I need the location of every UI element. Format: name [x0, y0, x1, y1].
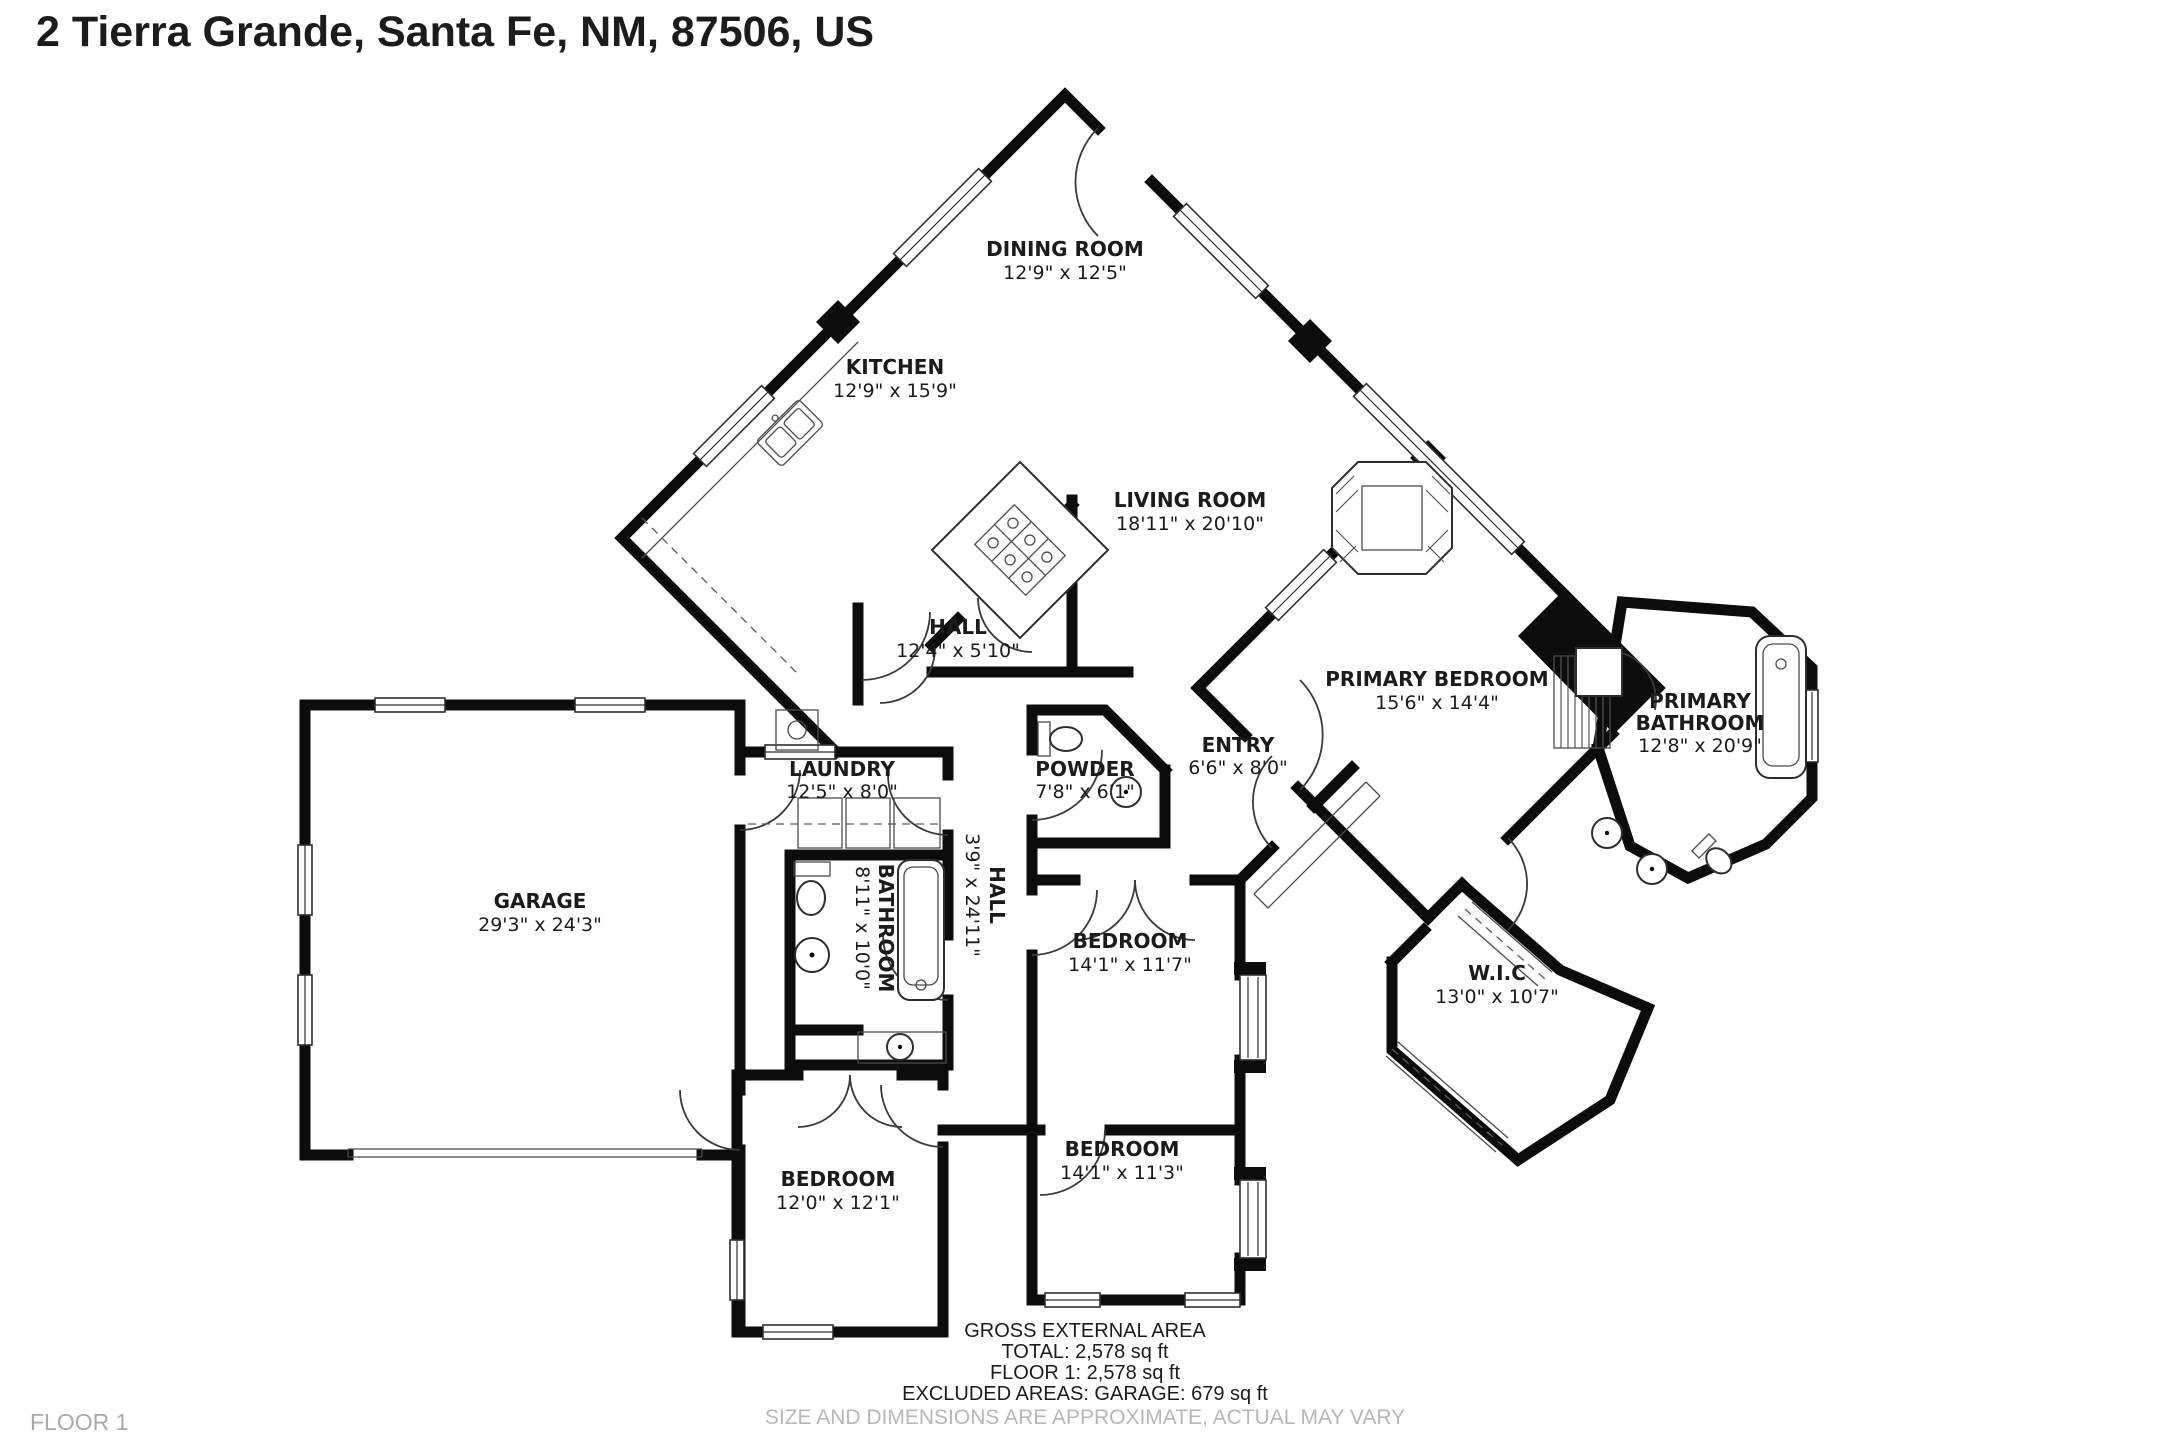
window-garage-top-2	[575, 698, 645, 712]
fixtures	[348, 342, 1806, 1157]
primary-bedroom-label: PRIMARY BEDROOM	[1325, 667, 1548, 691]
bathroom-label: BATHROOM	[874, 864, 898, 993]
door-arc-primary-entry	[1300, 680, 1323, 790]
toilet-icon	[794, 862, 830, 915]
door-arc-dining	[1075, 128, 1098, 236]
primary-bathroom-label-1: PRIMARY	[1649, 689, 1751, 713]
wall-entry-connector	[1314, 768, 1352, 806]
window-bedroom3-bottom	[763, 1325, 833, 1339]
powder-label: POWDER	[1035, 757, 1134, 781]
window-garage-left-2	[298, 975, 312, 1045]
kitchen-label: KITCHEN	[846, 355, 944, 379]
wall-primary-se	[1428, 734, 1612, 918]
primary-bathroom-label-2: BATHROOM	[1636, 711, 1765, 735]
hall2-dims: 3'9" x 24'11"	[961, 833, 983, 957]
primary-bathroom-dims: 12'8" x 20'9"	[1638, 735, 1762, 757]
window-bedroom2-bottom-1	[1045, 1293, 1100, 1307]
floor-tag: FLOOR 1	[30, 1409, 128, 1435]
bedroom-bl-dims: 12'0" x 12'1"	[776, 1192, 900, 1214]
footer-total: TOTAL: 2,578 sq ft	[1001, 1341, 1169, 1363]
window-kitchen	[694, 386, 775, 467]
living-room-label: LIVING ROOM	[1114, 488, 1267, 512]
footer-disclaimer: SIZE AND DIMENSIONS ARE APPROXIMATE, ACT…	[765, 1406, 1405, 1429]
sink-icon	[795, 938, 829, 972]
window-dining-ne	[1174, 204, 1269, 299]
door-arc-bedroom3	[881, 1085, 943, 1147]
entry-dims: 6'6" x 8'0"	[1188, 757, 1288, 779]
footer-floor1: FLOOR 1: 2,578 sq ft	[990, 1362, 1181, 1384]
garage-dims: 29'3" x 24'3"	[478, 914, 602, 936]
window-garage-top-1	[375, 698, 445, 712]
wic-dims: 13'0" x 10'7"	[1435, 986, 1559, 1008]
bedroom-bl-label: BEDROOM	[781, 1167, 896, 1191]
wall-wic	[1392, 888, 1648, 1160]
bedroom-bm-dims: 14'1" x 11'3"	[1060, 1162, 1184, 1184]
window-bedroom3-left	[730, 1240, 744, 1300]
door-arc-garage	[680, 1090, 740, 1150]
door-arc-bedroom3-closet-l	[798, 1075, 850, 1127]
garage-label: GARAGE	[494, 889, 587, 913]
primary-bathtub-icon	[1756, 636, 1806, 778]
laundry-label: LAUNDRY	[789, 757, 895, 781]
bedroom-mid-dims: 14'1" x 11'7"	[1068, 954, 1192, 976]
kitchen-counter	[642, 342, 858, 676]
dining-room-dims: 12'9" x 12'5"	[1003, 262, 1127, 284]
page-title: 2 Tierra Grande, Santa Fe, NM, 87506, US	[36, 8, 874, 56]
window-garage-left-1	[298, 845, 312, 915]
footer-area-title: GROSS EXTERNAL AREA	[964, 1320, 1206, 1342]
powder-toilet-icon	[1038, 722, 1082, 756]
living-room-dims: 18'11" x 20'10"	[1116, 513, 1264, 535]
fireplace-icon	[1332, 462, 1452, 574]
washer-dryer-icon	[748, 798, 944, 848]
footer: GROSS EXTERNAL AREA TOTAL: 2,578 sq ft F…	[30, 1320, 1405, 1435]
floor-plan-canvas: 2 Tierra Grande, Santa Fe, NM, 87506, US	[0, 0, 2173, 1448]
window-primary-nw	[1266, 550, 1337, 621]
entry-label: ENTRY	[1202, 733, 1275, 757]
floor-plan-page: 2 Tierra Grande, Santa Fe, NM, 87506, US	[0, 0, 2173, 1448]
kitchen-island-icon	[932, 462, 1108, 638]
laundry-dims: 12'5" x 8'0"	[786, 781, 898, 803]
hall-dims: 12'4" x 5'10"	[896, 640, 1020, 662]
wic-label: W.I.C	[1468, 961, 1526, 985]
bedroom-bm-label: BEDROOM	[1065, 1137, 1180, 1161]
hall2-label: HALL	[985, 866, 1009, 924]
primary-bedroom-dims: 15'6" x 14'4"	[1375, 692, 1499, 714]
window-bedroom2-bottom-2	[1185, 1293, 1240, 1307]
door-arc-wic	[1508, 838, 1527, 930]
kitchen-dims: 12'9" x 15'9"	[833, 380, 957, 402]
window-dining-nw	[894, 169, 992, 267]
bathroom-dims: 8'11" x 10'0"	[851, 866, 873, 990]
hall-label: HALL	[929, 615, 987, 639]
garage-door-icon	[348, 1149, 702, 1157]
door-arc-bedroom3-closet-r	[850, 1075, 902, 1127]
bathtub-icon	[898, 860, 944, 1000]
window-primary-bath	[1806, 690, 1818, 762]
vanity-sink-icon	[858, 1032, 946, 1063]
dining-room-label: DINING ROOM	[986, 237, 1144, 261]
powder-dims: 7'8" x 6'1"	[1035, 781, 1135, 803]
bedroom-mid-label: BEDROOM	[1073, 929, 1188, 953]
footer-excluded: EXCLUDED AREAS: GARAGE: 679 sq ft	[902, 1383, 1268, 1405]
